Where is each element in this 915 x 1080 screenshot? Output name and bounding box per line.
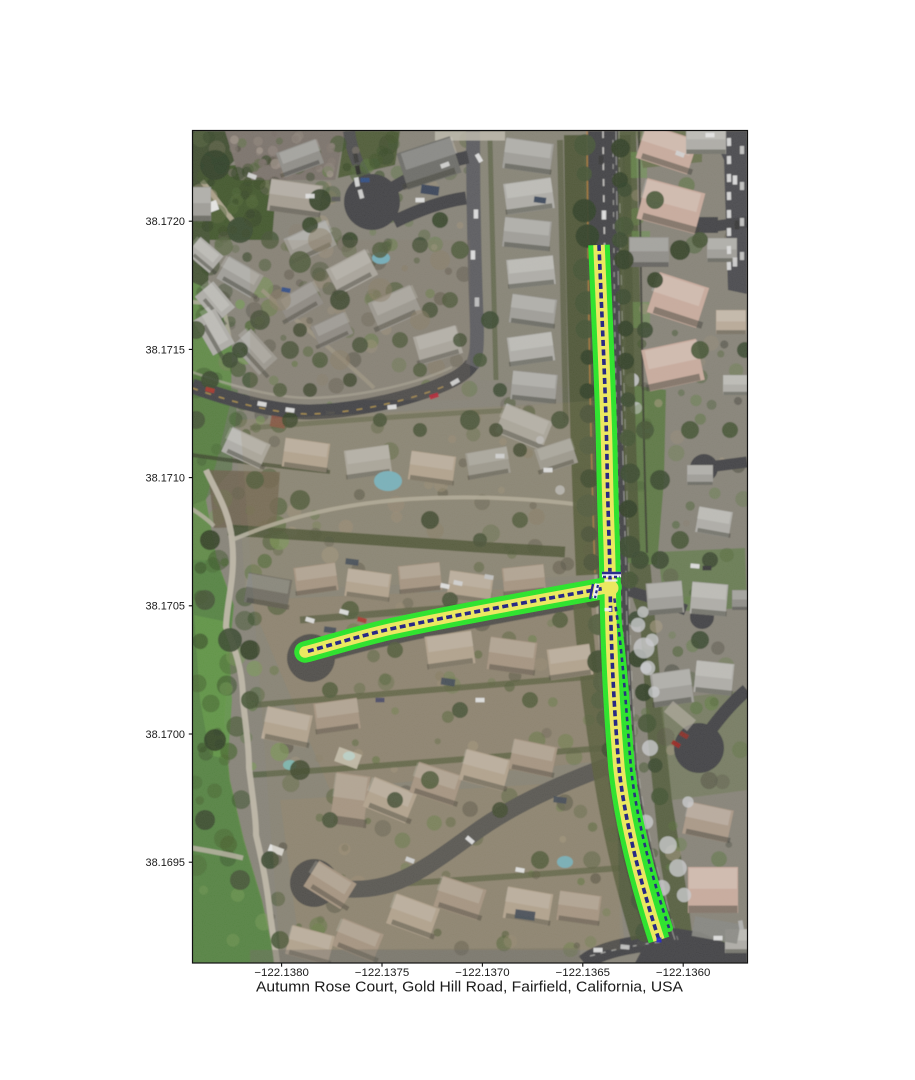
svg-text:38.1720: 38.1720 — [146, 216, 186, 228]
svg-text:−122.1360: −122.1360 — [656, 967, 711, 979]
svg-text:−122.1365: −122.1365 — [556, 967, 611, 979]
svg-text:38.1695: 38.1695 — [146, 857, 186, 869]
svg-text:−122.1380: −122.1380 — [254, 967, 309, 979]
svg-text:38.1710: 38.1710 — [146, 473, 186, 485]
svg-text:38.1715: 38.1715 — [146, 344, 186, 356]
svg-text:Autumn Rose Court, Gold Hill R: Autumn Rose Court, Gold Hill Road, Fairf… — [256, 980, 683, 996]
svg-text:−122.1375: −122.1375 — [355, 967, 410, 979]
svg-text:−122.1370: −122.1370 — [455, 967, 510, 979]
svg-text:38.1700: 38.1700 — [146, 729, 186, 741]
svg-text:38.1705: 38.1705 — [146, 601, 186, 613]
